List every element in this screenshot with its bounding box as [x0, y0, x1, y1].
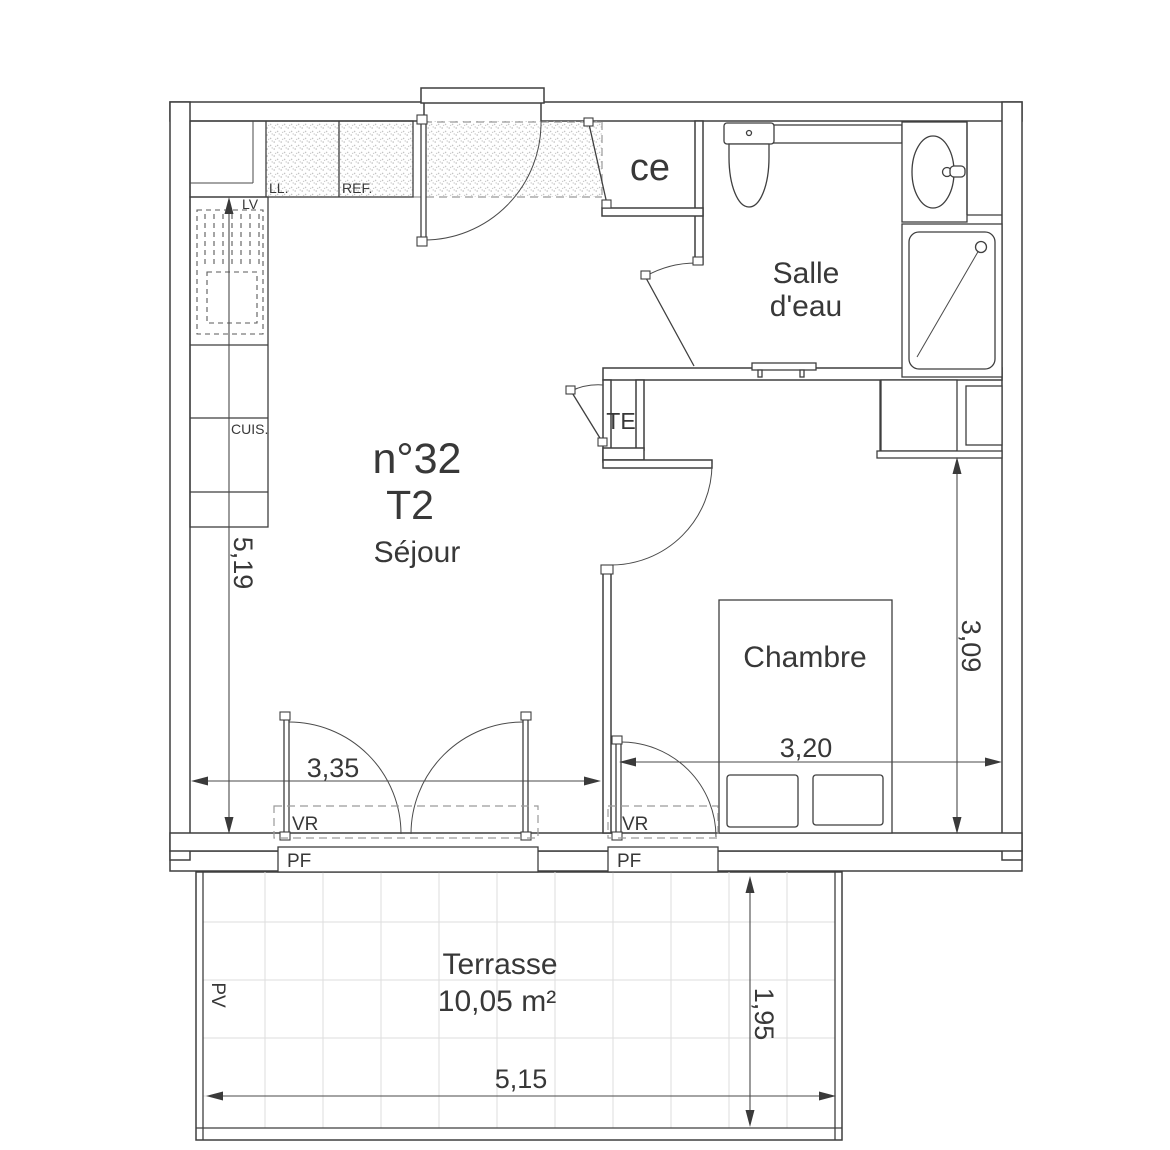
- west-wall: [170, 102, 190, 860]
- bedroom-window-label: PF: [617, 851, 641, 872]
- terrasse-area-label: 10,05 m²: [438, 985, 556, 1018]
- entry-zone: [266, 115, 602, 246]
- ce-east-wall: [695, 121, 703, 264]
- wardrobe-icon: [877, 380, 1002, 458]
- dimension-bedroom-height: 3,09: [953, 457, 987, 834]
- bedroom-french-door: VR PF: [608, 736, 718, 872]
- living-shutter-label: VR: [292, 814, 318, 835]
- te-door-arc: [571, 385, 603, 391]
- dimension-bedroom-width: 3,20: [619, 733, 1002, 767]
- terrasse-label: Terrasse: [442, 948, 557, 981]
- fridge-label: REF.: [342, 180, 372, 196]
- french-door-leaf-right: [523, 718, 528, 836]
- bathroom-label-line2: d'eau: [770, 290, 842, 323]
- bedroom-label: Chambre: [743, 641, 866, 674]
- ce-south-wall: [602, 208, 703, 216]
- living-room-label: Séjour: [374, 536, 461, 569]
- living-window-label: PF: [287, 851, 311, 872]
- bathroom-door-leaf: [646, 278, 694, 366]
- partition-wall: [603, 570, 611, 833]
- bed-icon: [719, 600, 892, 833]
- ce-label: ce: [630, 147, 670, 189]
- dimension-left-height: 5,19: [225, 197, 259, 834]
- bedroom-north-wall: [603, 460, 712, 468]
- bathroom-door-arc: [646, 263, 697, 276]
- unit-number-label: n°32: [373, 435, 462, 483]
- washer-label: LL.: [269, 180, 288, 196]
- bedroom-door-arc: [611, 464, 712, 565]
- dimension-terrace-width-value: 5,15: [495, 1064, 548, 1094]
- toilet-icon: [724, 123, 774, 207]
- dimension-living-width-value: 3,35: [307, 753, 360, 783]
- washbasin-icon: [902, 122, 967, 222]
- dimension-bedroom-width-value: 3,20: [780, 733, 833, 763]
- dimension-living-width: 3,35: [191, 753, 601, 786]
- bathroom-corner-cabinet: [967, 122, 1002, 215]
- te-label: TE: [606, 408, 635, 434]
- entry-door-leaf: [421, 121, 426, 240]
- dimension-left-height-value: 5,19: [228, 537, 258, 590]
- te-east-wall: [636, 380, 644, 450]
- entry-landing: [421, 88, 544, 103]
- terrasse-screen-label: PV: [207, 982, 228, 1008]
- bathroom-shelf: [773, 125, 902, 143]
- te-south-wall: [603, 448, 644, 460]
- dishwasher-icon: [197, 210, 263, 334]
- living-window-frame: [278, 847, 538, 872]
- dimension-bedroom-height-value: 3,09: [956, 620, 986, 673]
- entry-floor-stipple: [424, 121, 602, 197]
- east-wall: [1002, 102, 1022, 860]
- dimension-terrace-depth-value: 1,95: [749, 988, 779, 1041]
- bedroom-shutter-label: VR: [622, 814, 648, 835]
- north-wall-right: [541, 102, 1022, 121]
- te-nook: TE: [566, 380, 644, 462]
- bathroom-door: [641, 257, 703, 366]
- south-openings: VR PF VR PF: [274, 712, 718, 872]
- shower-icon: [902, 224, 1002, 377]
- living-french-door: VR PF: [274, 712, 538, 872]
- kitchen-label: CUIS.: [231, 421, 268, 437]
- te-door-leaf: [571, 391, 603, 443]
- north-wall-left: [170, 102, 424, 121]
- floorplan-drawing: LL. REF. LV CUIS. ce: [0, 0, 1170, 1150]
- french-door-arc-right: [411, 722, 523, 834]
- french-door-leaf-left: [284, 718, 289, 836]
- living-room: n°32 T2 Séjour: [373, 435, 462, 569]
- exterior-walls: [170, 88, 1022, 871]
- unit-type-label: T2: [386, 482, 434, 528]
- bathroom-label-line1: Salle: [773, 257, 840, 290]
- bedroom: Chambre: [601, 380, 1002, 833]
- floorplan-page: LL. REF. LV CUIS. ce: [0, 0, 1170, 1150]
- dishwasher-label: LV: [242, 196, 259, 212]
- bedroom-window-door-leaf: [616, 742, 621, 836]
